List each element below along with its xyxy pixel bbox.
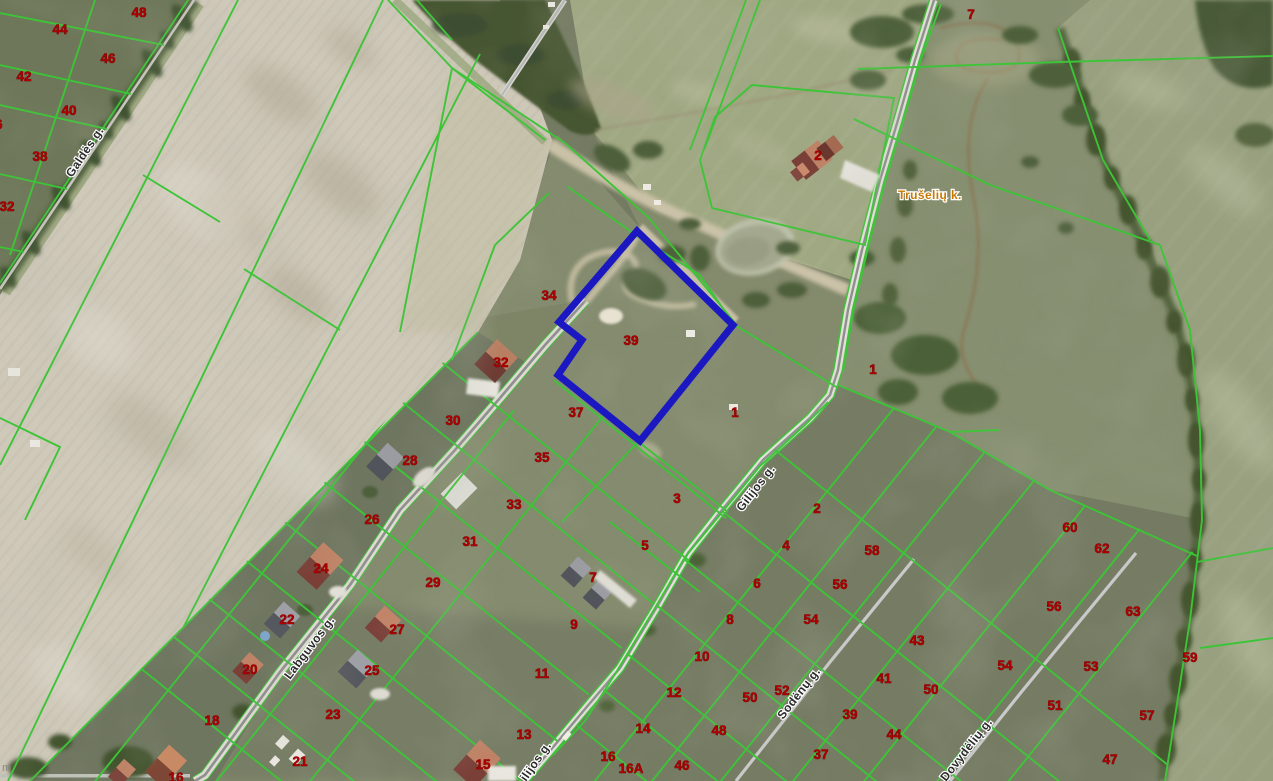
svg-text:28: 28 [402,453,418,468]
svg-text:56: 56 [832,577,848,592]
svg-text:31: 31 [462,534,478,549]
svg-text:16A: 16A [619,761,644,776]
svg-text:59: 59 [1182,650,1197,665]
svg-text:13: 13 [516,727,532,742]
svg-text:25: 25 [364,663,380,678]
svg-text:54: 54 [997,658,1013,673]
svg-text:37: 37 [813,747,828,762]
svg-text:30: 30 [445,413,460,428]
svg-text:10: 10 [694,649,709,664]
svg-text:34: 34 [541,288,557,303]
svg-text:29: 29 [425,575,440,590]
svg-text:48: 48 [131,5,147,20]
svg-text:12: 12 [666,685,681,700]
svg-text:6: 6 [753,576,761,591]
svg-text:43: 43 [909,633,925,648]
svg-text:33: 33 [506,497,522,512]
svg-text:22: 22 [279,612,294,627]
svg-text:9: 9 [570,617,578,632]
svg-text:37: 37 [568,405,583,420]
svg-text:54: 54 [803,612,819,627]
svg-text:27: 27 [389,622,404,637]
svg-text:26: 26 [364,512,380,527]
svg-text:63: 63 [1125,604,1141,619]
svg-text:58: 58 [864,543,880,558]
svg-text:8: 8 [726,612,734,627]
svg-text:46: 46 [100,51,116,66]
svg-text:1: 1 [731,405,739,420]
svg-text:50: 50 [923,682,938,697]
svg-text:Trušelių k.: Trušelių k. [898,188,962,202]
svg-text:20: 20 [242,662,257,677]
svg-text:48: 48 [711,723,727,738]
svg-text:18: 18 [204,713,220,728]
svg-text:16: 16 [168,770,184,781]
svg-text:46: 46 [674,758,690,773]
svg-text:7: 7 [967,7,975,22]
svg-text:4: 4 [782,538,790,553]
svg-text:62: 62 [1094,541,1109,556]
svg-text:39: 39 [842,707,857,722]
svg-text:3: 3 [673,491,681,506]
svg-text:2: 2 [813,501,821,516]
svg-text:1: 1 [869,362,877,377]
svg-text:51: 51 [1047,698,1063,713]
svg-text:39: 39 [623,333,638,348]
svg-text:35: 35 [534,450,550,465]
svg-text:32: 32 [0,199,15,214]
svg-text:15: 15 [475,757,491,772]
svg-text:44: 44 [886,727,902,742]
svg-text:38: 38 [32,149,48,164]
svg-text:14: 14 [635,721,651,736]
svg-text:53: 53 [1083,659,1099,674]
svg-text:11: 11 [535,666,550,681]
svg-text:44: 44 [52,22,68,37]
svg-text:56: 56 [1046,599,1062,614]
svg-text:21: 21 [292,754,308,769]
svg-text:16: 16 [600,749,616,764]
svg-text:32: 32 [493,355,508,370]
svg-text:60: 60 [1062,520,1077,535]
svg-text:23: 23 [325,707,341,722]
svg-text:42: 42 [16,69,31,84]
svg-text:7: 7 [589,570,597,585]
svg-text:50: 50 [742,690,757,705]
svg-text:24: 24 [313,561,329,576]
svg-text:m: m [2,762,12,774]
svg-text:47: 47 [1102,752,1117,767]
svg-text:40: 40 [61,103,76,118]
svg-text:2: 2 [814,148,822,163]
svg-text:41: 41 [876,671,892,686]
svg-text:5: 5 [641,538,649,553]
svg-text:57: 57 [1139,708,1154,723]
